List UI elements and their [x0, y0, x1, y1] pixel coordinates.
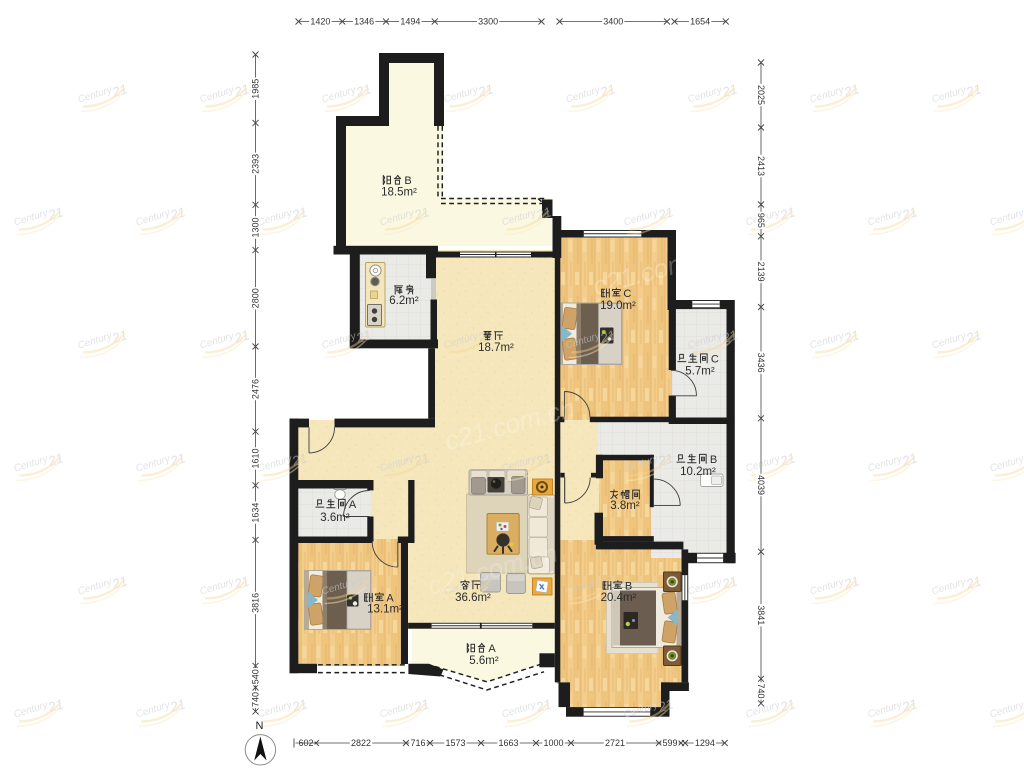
svg-text:540: 540: [251, 669, 261, 684]
svg-text:1663: 1663: [498, 738, 518, 748]
svg-text:18.7m²: 18.7m²: [478, 342, 514, 354]
svg-text:1494: 1494: [400, 17, 420, 27]
svg-text:3.6m²: 3.6m²: [320, 512, 350, 524]
svg-text:B: B: [404, 175, 411, 187]
svg-text:2139: 2139: [756, 262, 766, 282]
svg-text:2476: 2476: [251, 379, 261, 399]
svg-text:C: C: [711, 353, 719, 365]
svg-text:3400: 3400: [603, 17, 623, 27]
svg-text:599: 599: [662, 738, 677, 748]
svg-text:20.4m²: 20.4m²: [601, 592, 637, 604]
svg-text:1610: 1610: [251, 448, 261, 468]
svg-text:1654: 1654: [690, 17, 710, 27]
svg-text:3436: 3436: [756, 353, 766, 373]
svg-text:B: B: [625, 580, 632, 592]
svg-text:N: N: [256, 720, 264, 732]
svg-text:740: 740: [756, 684, 766, 699]
svg-text:3.8m²: 3.8m²: [610, 500, 640, 512]
svg-text:10.2m²: 10.2m²: [680, 466, 716, 478]
svg-text:1573: 1573: [445, 738, 465, 748]
svg-text:1420: 1420: [310, 17, 330, 27]
svg-text:A: A: [488, 643, 496, 655]
svg-text:2721: 2721: [605, 738, 625, 748]
svg-text:1634: 1634: [251, 503, 261, 523]
svg-text:1985: 1985: [251, 79, 261, 99]
svg-text:A: A: [349, 499, 357, 511]
svg-text:1300: 1300: [251, 217, 261, 237]
svg-text:1000: 1000: [543, 738, 563, 748]
svg-text:2822: 2822: [351, 738, 371, 748]
svg-text:13.1m²: 13.1m²: [367, 604, 403, 616]
svg-text:3841: 3841: [756, 605, 766, 625]
svg-text:C: C: [623, 288, 631, 300]
svg-text:36.6m²: 36.6m²: [455, 592, 491, 604]
svg-text:5.6m²: 5.6m²: [469, 655, 499, 667]
svg-text:B: B: [710, 454, 717, 466]
svg-text:2025: 2025: [756, 85, 766, 105]
svg-text:3816: 3816: [251, 593, 261, 613]
svg-text:3300: 3300: [478, 17, 498, 27]
svg-text:2413: 2413: [756, 156, 766, 176]
svg-text:740: 740: [251, 692, 261, 707]
svg-text:6.2m²: 6.2m²: [389, 295, 419, 307]
svg-text:5.7m²: 5.7m²: [685, 366, 715, 378]
svg-text:18.5m²: 18.5m²: [381, 187, 417, 199]
svg-text:716: 716: [410, 738, 425, 748]
svg-text:19.0m²: 19.0m²: [600, 300, 636, 312]
svg-text:1294: 1294: [695, 738, 715, 748]
svg-text:1346: 1346: [354, 17, 374, 27]
svg-text:2393: 2393: [251, 154, 261, 174]
svg-text:965: 965: [756, 213, 766, 228]
svg-text:2800: 2800: [251, 288, 261, 308]
svg-text:4039: 4039: [756, 475, 766, 495]
